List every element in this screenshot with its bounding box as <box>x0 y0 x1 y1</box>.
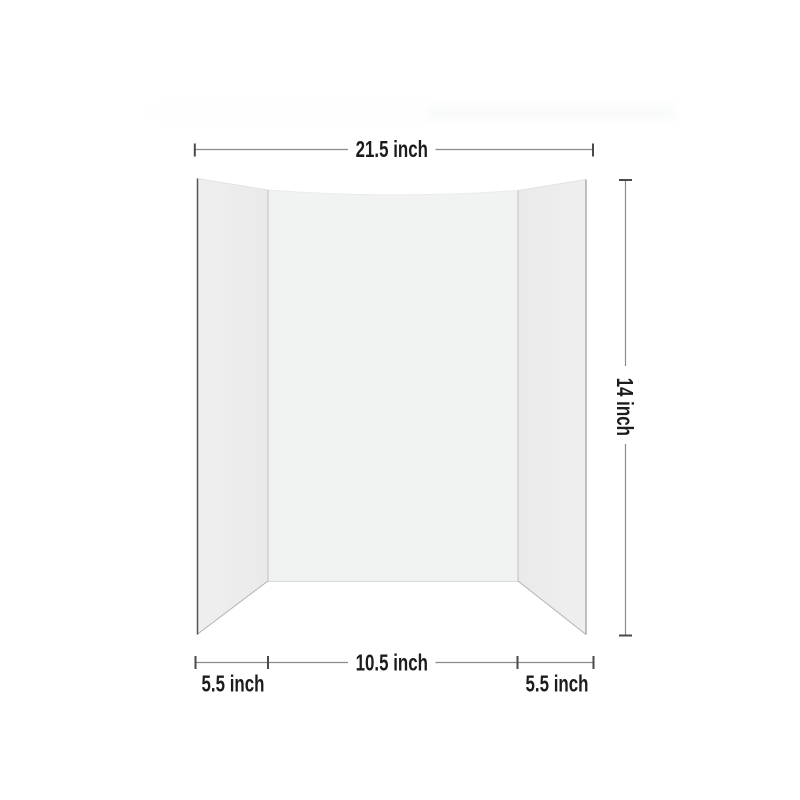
svg-text:5.5 inch: 5.5 inch <box>202 672 265 697</box>
svg-text:14 inch: 14 inch <box>611 378 636 436</box>
svg-text:21.5 inch: 21.5 inch <box>356 138 428 163</box>
svg-text:5.5 inch: 5.5 inch <box>526 672 589 697</box>
svg-text:10.5 inch: 10.5 inch <box>356 651 428 676</box>
